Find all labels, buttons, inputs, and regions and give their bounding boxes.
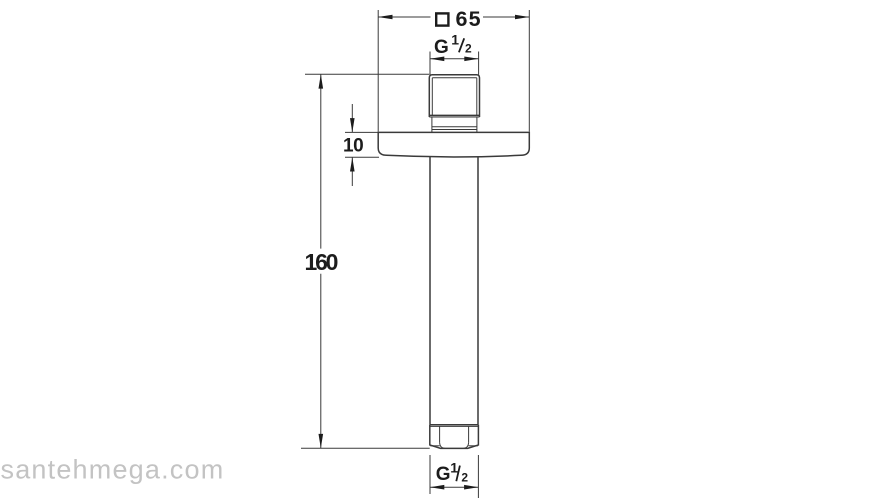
svg-text:santehmega.com: santehmega.com	[1, 455, 225, 485]
svg-text:2: 2	[461, 470, 468, 484]
svg-text:G: G	[436, 464, 451, 485]
svg-text:10: 10	[343, 135, 363, 156]
svg-text:2: 2	[465, 42, 472, 56]
svg-text:160: 160	[305, 249, 338, 275]
svg-text:1: 1	[451, 32, 459, 48]
svg-text:65: 65	[456, 7, 482, 31]
svg-text:G: G	[434, 37, 449, 58]
svg-text:1: 1	[450, 459, 458, 475]
